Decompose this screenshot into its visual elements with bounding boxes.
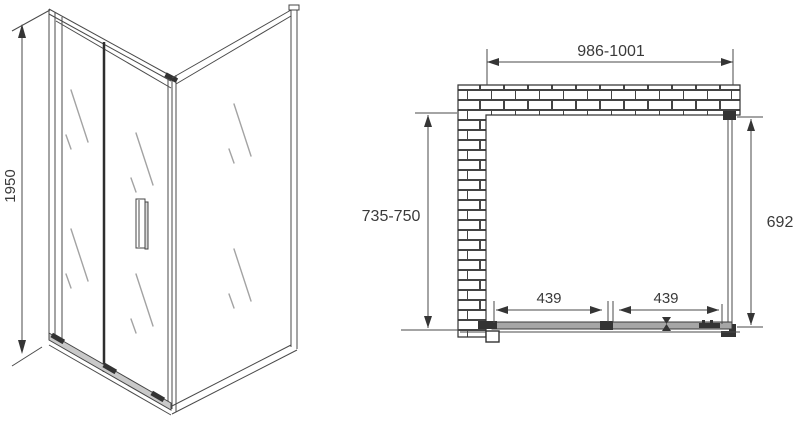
handle-section: [699, 323, 720, 328]
corner-bracket: [164, 72, 178, 83]
extension-line: [12, 347, 42, 366]
arrow-up-icon: [18, 24, 26, 38]
panel-dimension: 692: [737, 117, 793, 327]
arrow-up-icon: [747, 119, 755, 131]
depth-dimension: 735-750: [362, 113, 460, 330]
door-section-dimension-right: 439: [619, 290, 722, 324]
height-dimension: 1950: [2, 10, 50, 366]
width-dimension: 986-1001: [487, 43, 733, 85]
height-dimension-label: 1950: [2, 169, 19, 202]
arrow-right-icon: [707, 306, 719, 314]
glass-shine-marks: [66, 90, 251, 333]
arrow-left-icon: [496, 306, 508, 314]
side-panel-iso: [172, 5, 299, 414]
arrow-down-icon: [424, 316, 432, 328]
arrow-down-icon: [747, 313, 755, 325]
depth-dimension-label: 735-750: [362, 208, 421, 225]
door-track-plan: [460, 317, 740, 342]
handle-pin: [710, 320, 713, 323]
panel-top-cap: [289, 5, 299, 10]
door-handle: [136, 199, 148, 249]
arrow-left-icon: [487, 58, 499, 66]
door-section-label-right: 439: [653, 290, 678, 307]
arrow-right-icon: [590, 306, 602, 314]
arrow-down-icon: [18, 340, 26, 354]
plan-view: 986-1001 735-750 692: [362, 43, 794, 342]
iso-view: 1950: [2, 5, 299, 415]
width-dimension-label: 986-1001: [577, 43, 645, 60]
bottom-track-iso: [49, 333, 171, 415]
shower-technical-drawing: 1950: [0, 0, 800, 421]
arrow-up-icon: [424, 115, 432, 127]
wall-profile-section: [486, 331, 499, 342]
wall-profile-bracket: [723, 111, 736, 120]
arrow-right-icon: [721, 58, 733, 66]
arrow-left-icon: [619, 306, 631, 314]
extension-line: [12, 10, 50, 31]
door-section-label-left: 439: [536, 290, 561, 307]
brick-wall: [458, 85, 740, 337]
roller-block: [600, 321, 613, 330]
technical-drawing-page: 1950: [0, 0, 800, 421]
panel-dimension-label: 692: [767, 214, 794, 231]
side-panel-plan: [721, 111, 736, 337]
door-section-dimension-left: 439: [494, 290, 613, 323]
handle-pin: [702, 320, 705, 323]
